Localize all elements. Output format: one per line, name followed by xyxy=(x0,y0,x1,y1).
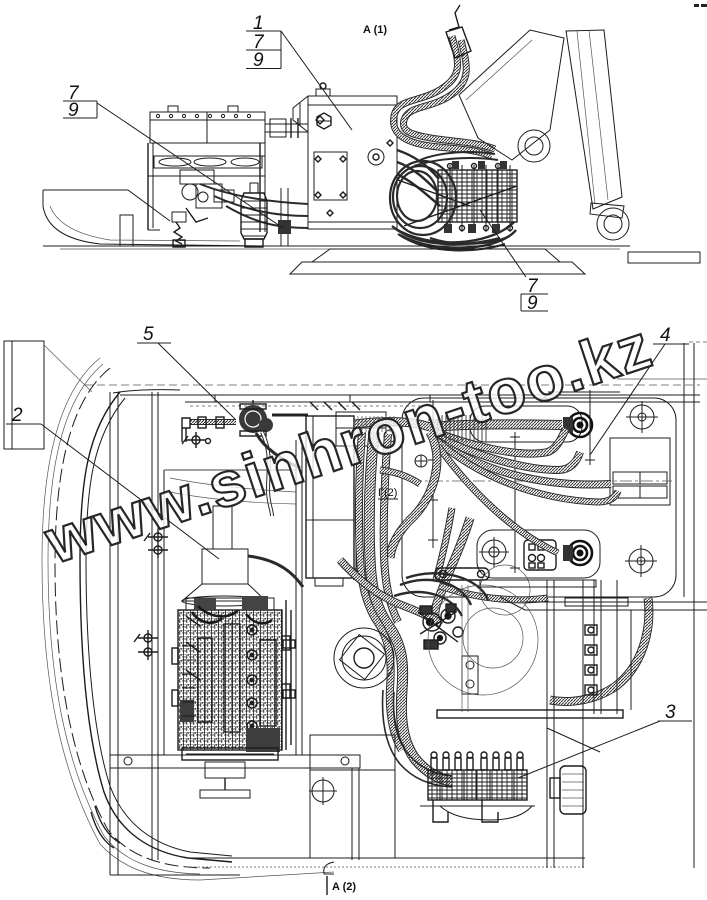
svg-text:4: 4 xyxy=(660,325,671,346)
svg-text:2: 2 xyxy=(11,405,23,426)
svg-text:3: 3 xyxy=(665,702,676,723)
svg-text:A (2): A (2) xyxy=(332,881,356,893)
svg-text:Г(2): Г(2) xyxy=(378,487,397,499)
svg-text:www.sinhron-too.kz: www.sinhron-too.kz xyxy=(36,311,659,577)
svg-text:5: 5 xyxy=(143,324,154,345)
svg-text:A (1): A (1) xyxy=(363,24,387,36)
svg-text:9: 9 xyxy=(253,50,264,71)
